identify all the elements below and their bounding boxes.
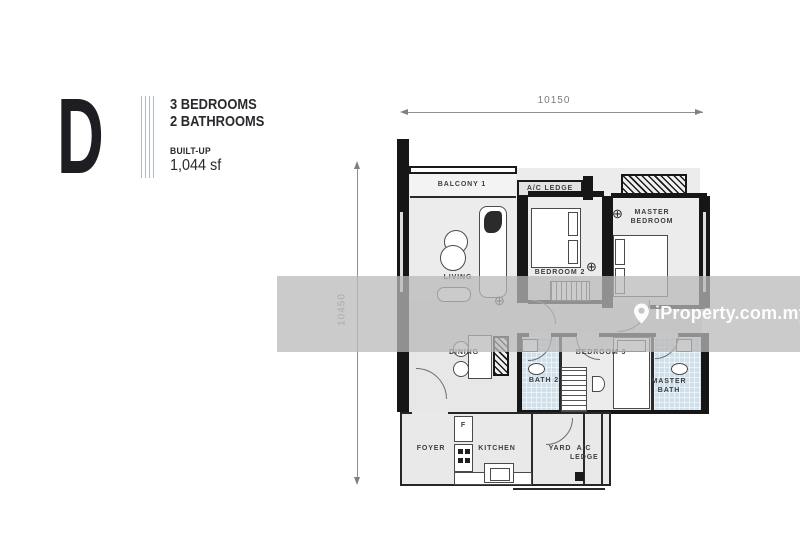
living-round-table-2 [440, 245, 466, 271]
panel-divider-lines [141, 96, 154, 178]
watermark: iProperty.com.my [634, 303, 800, 324]
fridge: F [454, 416, 473, 442]
wall-top-master [611, 193, 707, 198]
unit-letter: D [57, 94, 104, 178]
built-up-label: BUILT-UP [170, 146, 211, 157]
bedroom2-pillow-1 [568, 212, 578, 236]
wall-acledge-inner [601, 414, 603, 484]
yard-drain [575, 472, 584, 481]
master-bath-toilet [671, 363, 688, 375]
bedrooms-text: 3 BEDROOMS [170, 96, 257, 113]
dimension-arrow-right-icon [695, 109, 703, 115]
kitchen-sink [484, 463, 514, 483]
room-label-ac-ledge-bottom: A/C LEDGE [570, 444, 598, 462]
bath2-toilet [528, 363, 545, 375]
bathrooms-text: 2 BATHROOMS [170, 113, 264, 130]
floorplan-page: D 3 BEDROOMS 2 BATHROOMS BUILT-UP 1,044 … [0, 0, 800, 553]
entrance-door-gap [412, 411, 448, 416]
room-label-kitchen: KITCHEN [467, 444, 527, 453]
dimension-arrow-left-icon [400, 109, 408, 115]
dining-chair-2 [453, 361, 469, 377]
fridge-label: F [455, 421, 472, 430]
master-pillow-1 [615, 239, 625, 265]
dimension-width-label: 10150 [405, 95, 703, 106]
room-label-foyer: FOYER [406, 444, 456, 453]
room-label-ac-ledge-top: A/C LEDGE [520, 184, 580, 193]
room-label-master-bedroom: MASTER BEDROOM [622, 208, 682, 226]
room-label-balcony1: BALCONY 1 [422, 180, 502, 189]
balcony-parapet [409, 166, 517, 174]
plant [484, 211, 502, 233]
room-label-master-bath: MASTER BATH [646, 377, 692, 395]
bedroom2-pillow-2 [568, 240, 578, 264]
base-ledge-line [513, 488, 605, 490]
balcony-glass-line [410, 196, 516, 198]
dimension-arrow-down-icon [354, 477, 360, 485]
wash-basin [592, 376, 605, 392]
watermark-text: iProperty.com.my [655, 303, 800, 324]
location-pin-icon [634, 303, 649, 324]
linen-shelf [561, 367, 587, 412]
dimension-arrow-up-icon [354, 161, 360, 169]
room-label-bath2: BATH 2 [524, 376, 564, 385]
built-up-value: 1,044 sf [170, 157, 221, 175]
dimension-width-line [405, 112, 703, 113]
wall-left-stub [397, 139, 409, 171]
